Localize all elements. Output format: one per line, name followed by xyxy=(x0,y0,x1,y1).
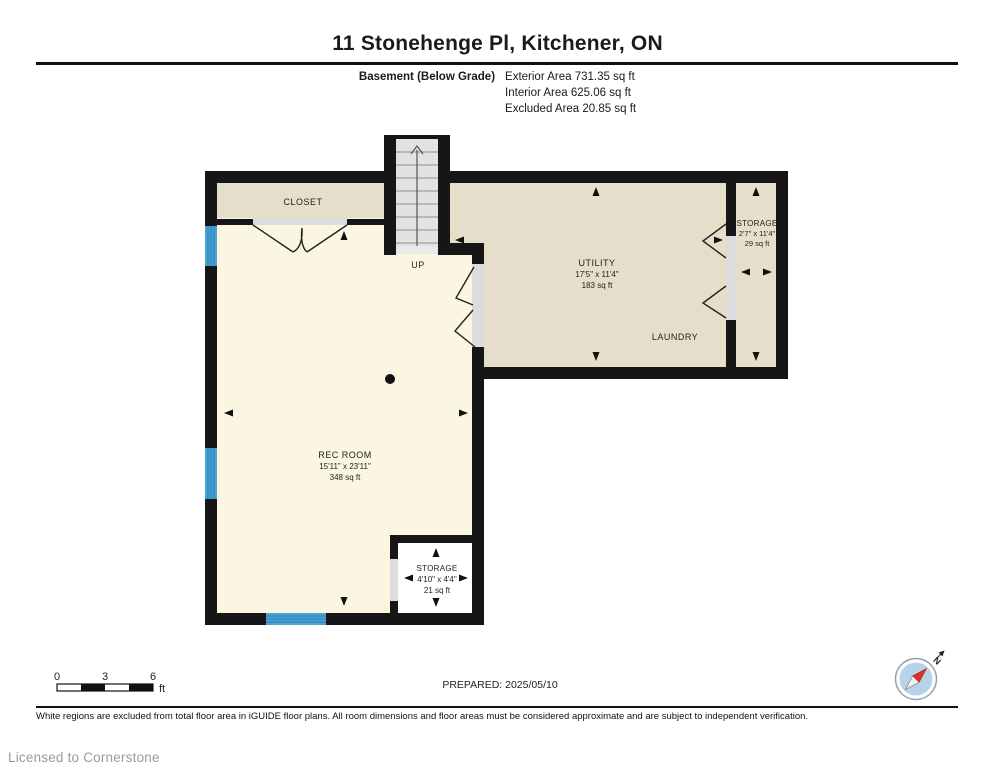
window-bottom xyxy=(266,613,326,625)
storage-small-area: 21 sq ft xyxy=(424,586,451,595)
storage-small-top-wall xyxy=(390,535,484,543)
closet-bottom-wall-right xyxy=(347,219,384,225)
closet-bottom-wall-left xyxy=(217,219,253,225)
rec-utility-door-opening xyxy=(472,264,484,347)
bottom-wall xyxy=(205,613,484,625)
footer-divider xyxy=(36,706,958,708)
scale-tick-0: 0 xyxy=(54,671,60,683)
right-outer-wall xyxy=(776,171,788,379)
closet-label: CLOSET xyxy=(283,197,322,207)
camera-point-marker xyxy=(385,374,395,384)
prepared-date: PREPARED: 2025/05/10 xyxy=(442,679,558,691)
disclaimer-text: White regions are excluded from total fl… xyxy=(36,711,956,722)
top-wall-left xyxy=(205,171,386,183)
storage-small-door-opening xyxy=(390,559,398,601)
compass-icon: N xyxy=(896,651,945,700)
floor-areas xyxy=(211,177,782,619)
scale-bar-segment-black-1 xyxy=(81,684,105,691)
top-wall-right xyxy=(448,171,788,183)
scale-unit: ft xyxy=(159,683,165,695)
storage-right-dims: 2'7" x 11'4" xyxy=(739,229,776,238)
storage-small-dims: 4'10" x 4'4" xyxy=(417,575,457,584)
scale-tick-3: 3 xyxy=(102,671,108,683)
utility-storage-door-opening xyxy=(726,236,736,320)
storage-small-label: STORAGE xyxy=(416,564,457,573)
utility-bottom-wall xyxy=(472,367,788,379)
stair-bottom-opening xyxy=(396,246,438,254)
license-watermark: Licensed to Cornerstone xyxy=(8,750,160,765)
stair-right-wall xyxy=(438,135,450,255)
rec-room-dims: 15'11" x 23'11" xyxy=(319,462,371,471)
scale-bar-segment-black-2 xyxy=(129,684,153,691)
floor-plan: CLOSET UP UTILITY 17'5" x 11'4" 183 sq f… xyxy=(0,0,995,768)
up-label: UP xyxy=(411,260,425,270)
storage-right-label: STORAGE xyxy=(736,219,777,228)
utility-area: 183 sq ft xyxy=(582,281,613,290)
scale-tick-6: 6 xyxy=(150,671,156,683)
rec-room-area: 348 sq ft xyxy=(330,473,361,482)
laundry-label: LAUNDRY xyxy=(652,332,698,342)
window-left-lower xyxy=(205,448,217,499)
scale-bar: 0 3 6 ft xyxy=(54,671,165,695)
storage-right-area: 29 sq ft xyxy=(745,239,771,248)
stair-connector-wall xyxy=(438,243,484,255)
compass-north-label: N xyxy=(931,655,943,667)
rec-room-label: REC ROOM xyxy=(318,450,372,460)
closet-door-opening xyxy=(253,218,347,225)
utility-dims: 17'5" x 11'4" xyxy=(575,270,618,279)
stairs xyxy=(384,135,450,255)
utility-label: UTILITY xyxy=(578,258,615,268)
window-left-upper xyxy=(205,226,217,266)
stair-left-wall xyxy=(384,135,396,255)
